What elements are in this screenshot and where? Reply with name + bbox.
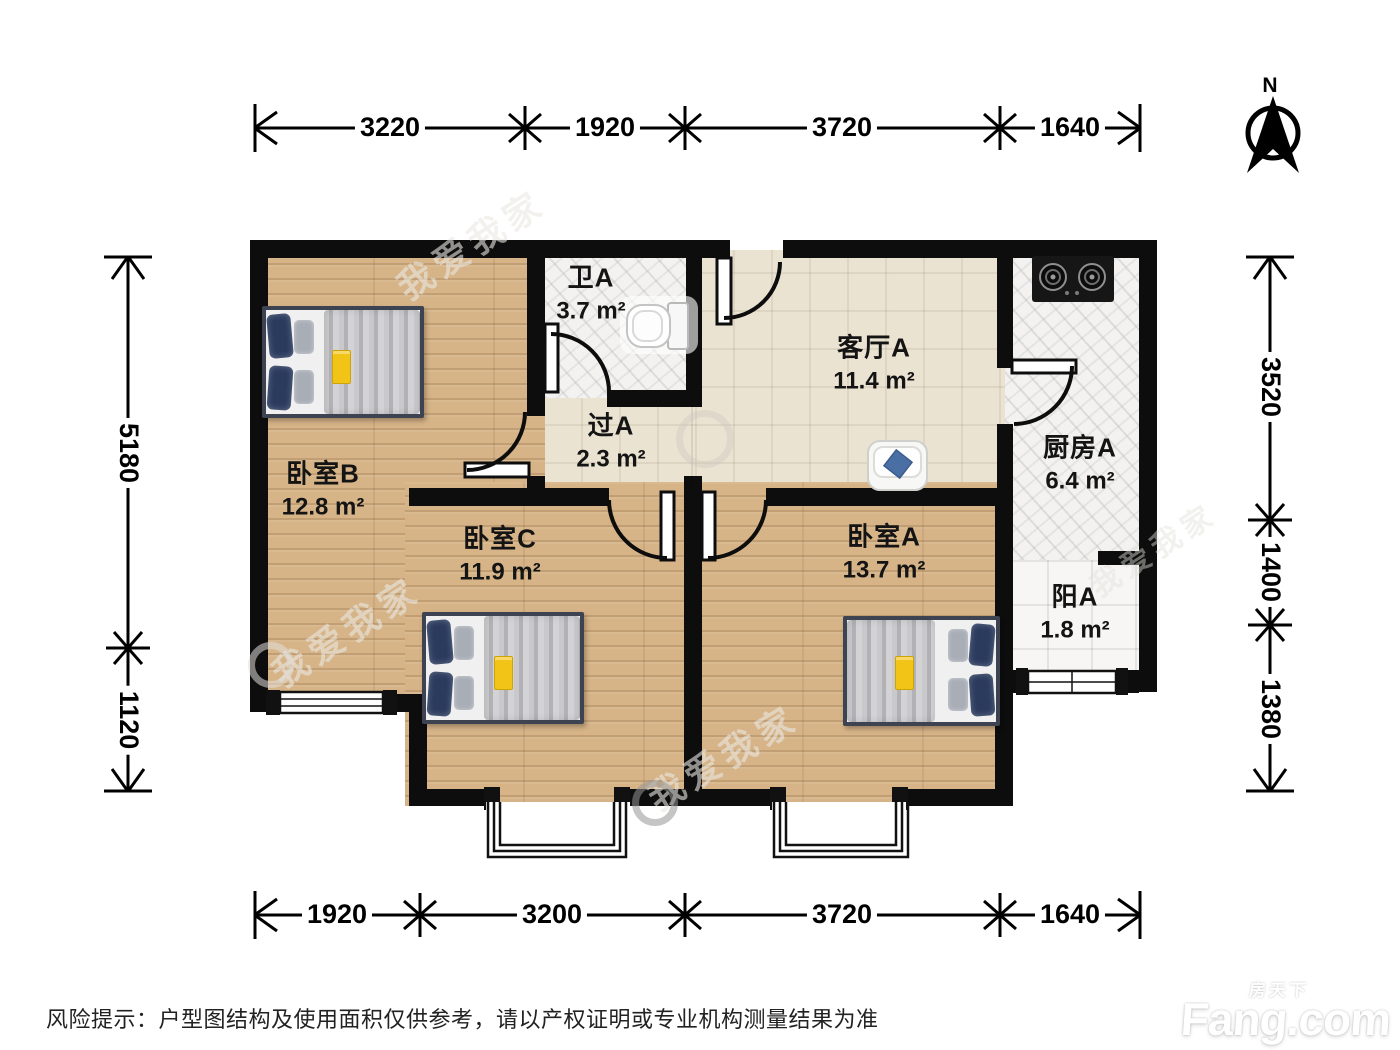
room-label-bedroom-b: 卧室B 12.8 m² — [282, 461, 365, 520]
bed — [422, 612, 584, 724]
risk-disclaimer: 风险提示：户型图结构及使用面积仅供参考，请以产权证明或专业机构测量结果为准 — [46, 1002, 879, 1034]
dim-label-left-1: 5180 — [113, 418, 143, 488]
wall — [527, 258, 545, 416]
wall — [997, 424, 1013, 500]
room-label-bedroom-a: 卧室A 13.7 m² — [843, 524, 926, 583]
wall — [250, 694, 270, 712]
compass-icon — [1247, 96, 1299, 173]
wall — [766, 488, 1013, 506]
pillow — [294, 370, 314, 404]
dim-label-bottom-1: 1920 — [302, 900, 372, 930]
wall — [409, 789, 486, 806]
room-label-living: 客厅A 11.4 m² — [833, 335, 914, 394]
fang-logo: 房天下 Fang.com — [1179, 996, 1391, 1042]
dim-label-top-4: 1640 — [1035, 113, 1105, 143]
room-label-bedroom-c: 卧室C 11.9 m² — [459, 526, 540, 585]
room-name: 卧室B — [282, 461, 365, 487]
pillow — [294, 320, 314, 354]
pillow — [266, 365, 293, 411]
room-name: 过A — [576, 413, 645, 439]
dim-label-top-1: 3220 — [355, 113, 425, 143]
room-label-bathroom: 卫A 3.7 m² — [556, 265, 625, 324]
bed-blanket — [847, 620, 935, 722]
pillow — [454, 676, 474, 710]
dim-label-right-2: 1400 — [1255, 537, 1285, 607]
room-area: 1.8 m² — [1040, 619, 1109, 643]
floor-kitchen — [1005, 250, 1157, 565]
pillow — [426, 671, 453, 717]
room-area: 6.4 m² — [1043, 470, 1117, 494]
room-area: 13.7 m² — [843, 559, 926, 583]
room-area: 2.3 m² — [576, 448, 645, 472]
watermark-logo-icon — [676, 410, 734, 468]
watermark-logo-icon — [248, 642, 294, 688]
pillow — [266, 313, 294, 359]
dim-label-right-1: 3520 — [1255, 352, 1285, 422]
room-area: 12.8 m² — [282, 496, 365, 520]
bed-accent — [895, 656, 914, 690]
dim-label-bottom-3: 3720 — [807, 900, 877, 930]
fang-logo-en: Fang.com — [1179, 993, 1392, 1045]
room-label-hallway: 过A 2.3 m² — [576, 413, 645, 472]
dim-label-right-3: 1380 — [1255, 674, 1285, 744]
watermark-logo-icon — [632, 780, 678, 826]
pillow — [968, 623, 996, 667]
pillow — [426, 619, 454, 665]
wall — [1139, 240, 1157, 692]
room-area: 11.4 m² — [833, 370, 914, 394]
room-area: 11.9 m² — [459, 561, 540, 585]
wall — [783, 240, 1157, 258]
compass-north-label: N — [1262, 74, 1277, 98]
dim-label-bottom-4: 1640 — [1035, 900, 1105, 930]
room-name: 卧室C — [459, 526, 540, 552]
bed — [262, 306, 424, 418]
wall — [686, 258, 702, 398]
bed-accent — [332, 350, 351, 384]
pillow — [948, 629, 968, 662]
room-name: 客厅A — [833, 335, 914, 361]
dim-label-left-2: 1120 — [113, 686, 143, 755]
wall — [1125, 670, 1139, 693]
pillow — [969, 673, 996, 717]
dim-label-top-3: 3720 — [807, 113, 877, 143]
wall — [409, 488, 609, 506]
dim-label-top-2: 1920 — [570, 113, 640, 143]
wall — [997, 258, 1013, 368]
dim-label-bottom-2: 3200 — [517, 900, 587, 930]
bed-accent — [494, 656, 513, 690]
room-name: 卧室A — [843, 524, 926, 550]
pillow — [948, 678, 968, 711]
fang-logo-cn: 房天下 — [1248, 982, 1309, 999]
room-area: 3.7 m² — [556, 300, 625, 324]
bed — [843, 616, 1000, 726]
floor-plan-page: 3220 1920 3720 1640 1920 3200 3720 1640 … — [0, 0, 1400, 1050]
pillow — [454, 626, 474, 660]
room-label-kitchen: 厨房A 6.4 m² — [1043, 435, 1117, 494]
room-name: 卫A — [556, 265, 625, 291]
room-name: 厨房A — [1043, 435, 1117, 461]
